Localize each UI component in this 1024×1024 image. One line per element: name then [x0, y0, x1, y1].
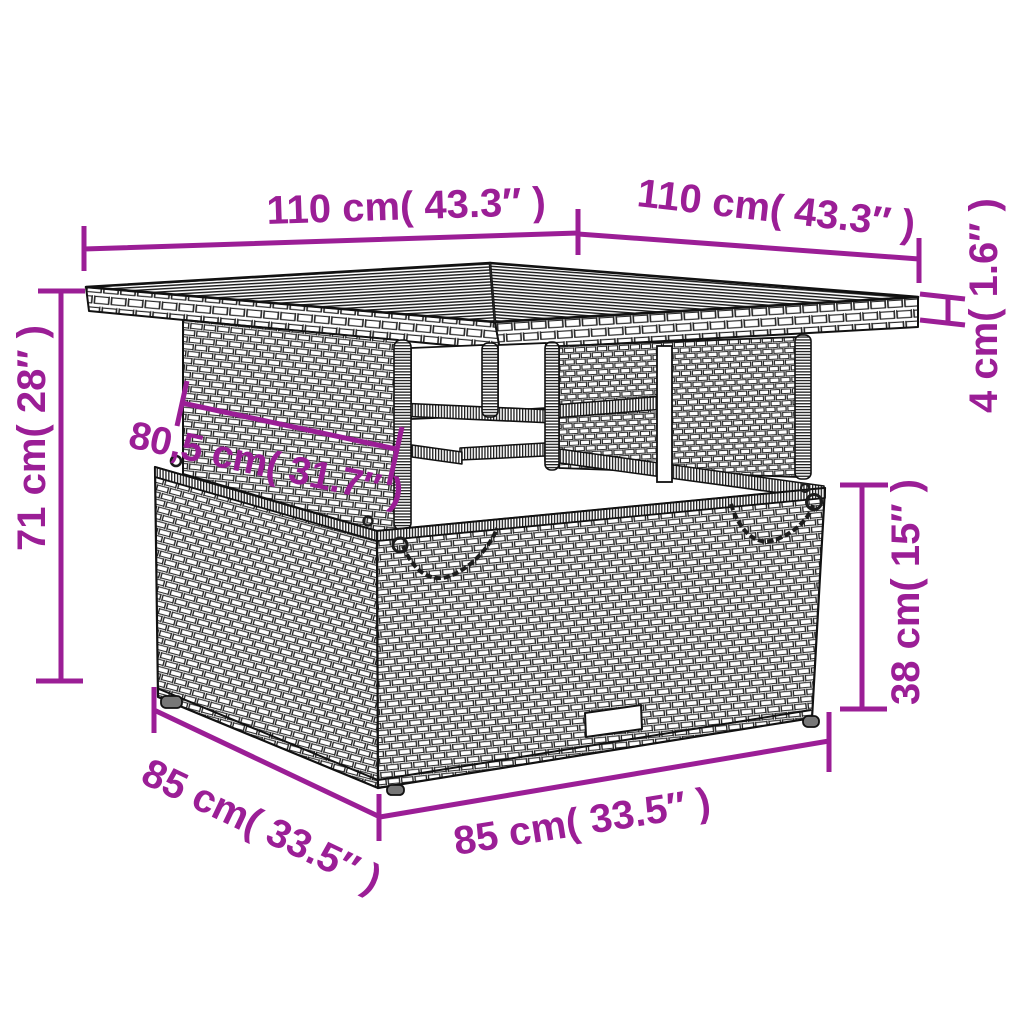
svg-text:38 cm( 15″ ): 38 cm( 15″ ) [884, 479, 928, 705]
svg-text:4 cm( 1.6″ ): 4 cm( 1.6″ ) [962, 198, 1006, 413]
svg-text:71 cm( 28″ ): 71 cm( 28″ ) [10, 325, 54, 551]
svg-text:110 cm( 43.3″ ): 110 cm( 43.3″ ) [266, 180, 547, 233]
